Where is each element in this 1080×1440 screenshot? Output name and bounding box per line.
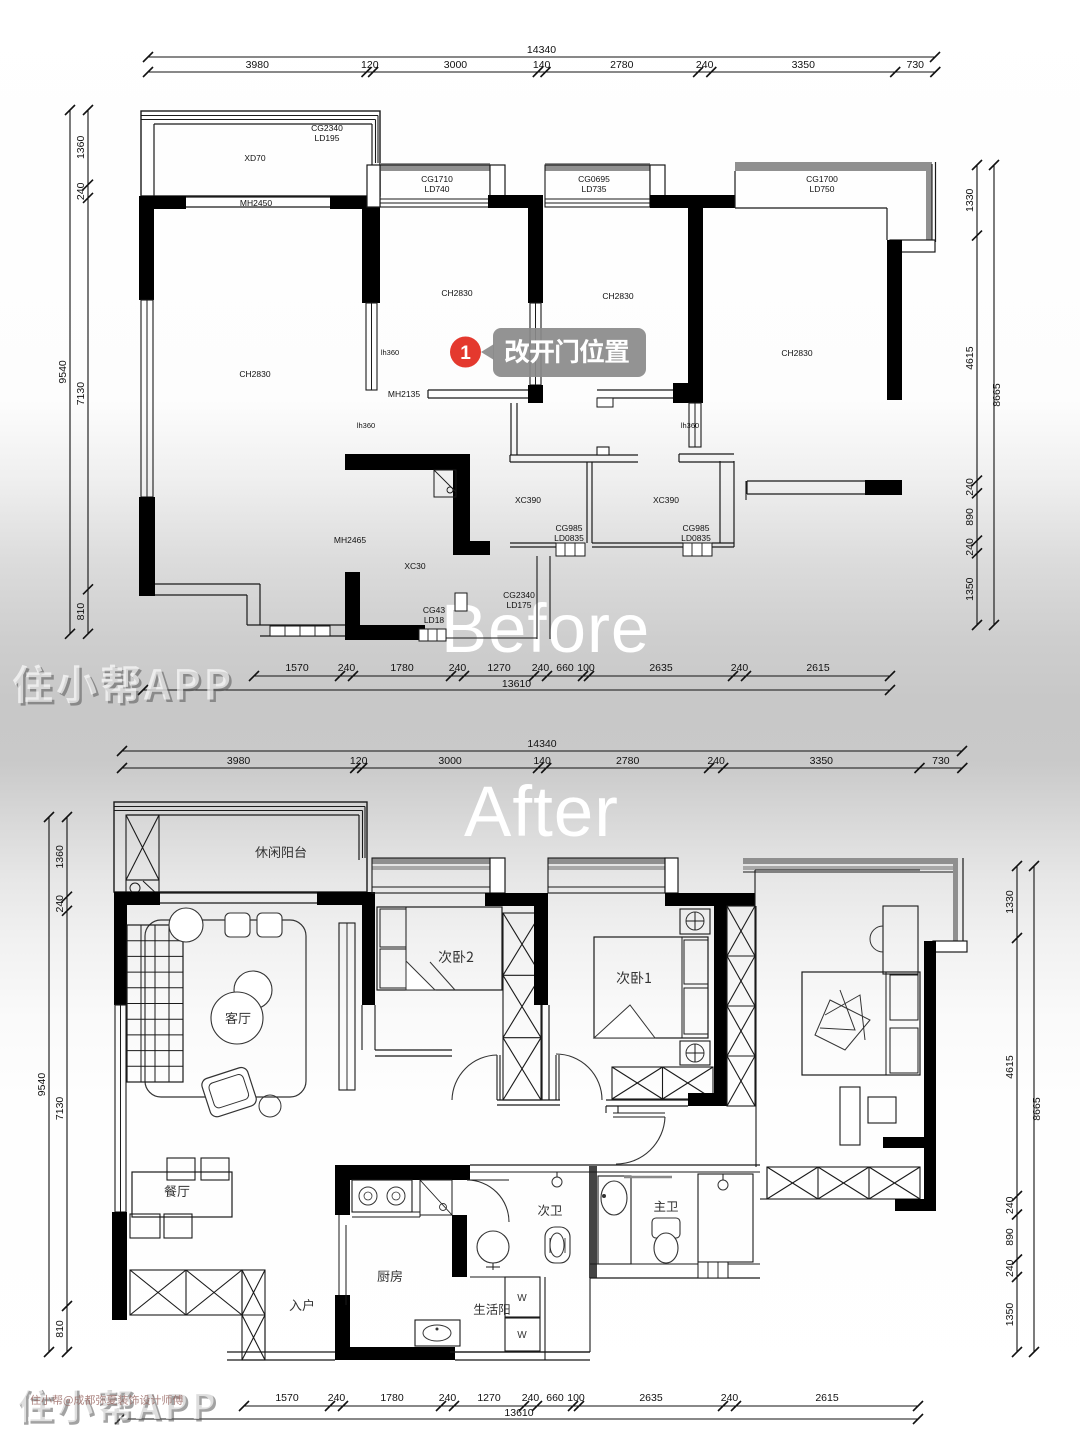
- svg-text:W: W: [517, 1330, 527, 1341]
- svg-text:13610: 13610: [502, 678, 531, 690]
- svg-text:CH2830: CH2830: [781, 348, 812, 358]
- svg-text:lh360: lh360: [681, 421, 699, 430]
- svg-text:120: 120: [350, 755, 368, 767]
- svg-text:8665: 8665: [991, 383, 1003, 407]
- svg-text:XC390: XC390: [515, 495, 541, 505]
- svg-text:1270: 1270: [487, 662, 511, 674]
- svg-text:240: 240: [696, 59, 714, 71]
- svg-text:810: 810: [54, 1320, 66, 1338]
- svg-text:4615: 4615: [964, 346, 976, 370]
- svg-text:100: 100: [577, 662, 595, 674]
- svg-text:1350: 1350: [1004, 1303, 1016, 1327]
- svg-text:660: 660: [556, 662, 574, 674]
- svg-text:14340: 14340: [527, 738, 556, 750]
- svg-text:100: 100: [567, 1392, 585, 1404]
- svg-text:LD175: LD175: [506, 600, 531, 610]
- svg-text:3980: 3980: [227, 755, 251, 767]
- svg-text:2615: 2615: [806, 662, 830, 674]
- svg-text:XD70: XD70: [244, 153, 266, 163]
- svg-text:1570: 1570: [285, 662, 309, 674]
- svg-text:2635: 2635: [649, 662, 673, 674]
- svg-text:3350: 3350: [792, 59, 816, 71]
- svg-text:CG0695: CG0695: [578, 174, 610, 184]
- svg-text:LD18: LD18: [424, 615, 445, 625]
- svg-text:240: 240: [707, 755, 725, 767]
- svg-text:240: 240: [75, 182, 87, 200]
- svg-text:3000: 3000: [438, 755, 462, 767]
- svg-text:MH2135: MH2135: [388, 389, 420, 399]
- svg-text:240: 240: [449, 662, 467, 674]
- svg-text:LD735: LD735: [581, 184, 606, 194]
- svg-text:240: 240: [328, 1392, 346, 1404]
- svg-text:1570: 1570: [275, 1392, 299, 1404]
- svg-text:1270: 1270: [477, 1392, 501, 1404]
- svg-text:MH2465: MH2465: [334, 535, 366, 545]
- svg-text:CG1700: CG1700: [806, 174, 838, 184]
- svg-text:140: 140: [533, 59, 551, 71]
- svg-text:LD0835: LD0835: [554, 533, 584, 543]
- svg-text:1350: 1350: [964, 577, 976, 601]
- svg-text:CH2830: CH2830: [239, 369, 270, 379]
- svg-text:120: 120: [361, 59, 379, 71]
- svg-text:CH2830: CH2830: [441, 288, 472, 298]
- svg-text:240: 240: [532, 662, 550, 674]
- svg-text:lh360: lh360: [381, 348, 399, 357]
- svg-text:CG985: CG985: [556, 523, 583, 533]
- svg-text:240: 240: [1004, 1259, 1016, 1277]
- svg-text:LD195: LD195: [314, 133, 339, 143]
- svg-text:240: 240: [964, 538, 976, 556]
- svg-text:14340: 14340: [527, 44, 556, 56]
- svg-text:7130: 7130: [54, 1097, 66, 1121]
- svg-text:1330: 1330: [964, 188, 976, 212]
- svg-text:XC390: XC390: [653, 495, 679, 505]
- svg-text:240: 240: [338, 662, 356, 674]
- svg-text:730: 730: [932, 755, 950, 767]
- svg-text:3350: 3350: [810, 755, 834, 767]
- svg-text:lh360: lh360: [357, 421, 375, 430]
- svg-text:CG2340: CG2340: [503, 590, 535, 600]
- svg-text:3000: 3000: [444, 59, 468, 71]
- svg-text:240: 240: [54, 895, 66, 913]
- svg-text:9540: 9540: [57, 360, 69, 384]
- svg-text:LD750: LD750: [809, 184, 834, 194]
- svg-text:1: 1: [460, 343, 471, 364]
- svg-text:9540: 9540: [36, 1073, 48, 1097]
- svg-text:CG43: CG43: [423, 605, 445, 615]
- svg-text:810: 810: [75, 603, 87, 621]
- svg-text:240: 240: [721, 1392, 739, 1404]
- svg-text:240: 240: [731, 662, 749, 674]
- svg-text:2615: 2615: [815, 1392, 839, 1404]
- svg-text:1360: 1360: [54, 845, 66, 869]
- svg-text:730: 730: [906, 59, 924, 71]
- svg-text:XC30: XC30: [404, 561, 426, 571]
- svg-text:660: 660: [546, 1392, 564, 1404]
- svg-text:1330: 1330: [1004, 890, 1016, 914]
- svg-text:140: 140: [533, 755, 551, 767]
- svg-text:1780: 1780: [380, 1392, 404, 1404]
- svg-text:240: 240: [1004, 1196, 1016, 1214]
- svg-text:CG1710: CG1710: [421, 174, 453, 184]
- svg-text:7130: 7130: [75, 382, 87, 406]
- svg-text:2780: 2780: [610, 59, 634, 71]
- svg-text:MH2450: MH2450: [240, 198, 272, 208]
- svg-text:1360: 1360: [75, 136, 87, 160]
- svg-text:240: 240: [522, 1392, 540, 1404]
- svg-text:1780: 1780: [390, 662, 414, 674]
- svg-text:2635: 2635: [639, 1392, 663, 1404]
- svg-text:240: 240: [439, 1392, 457, 1404]
- svg-text:CG985: CG985: [683, 523, 710, 533]
- svg-text:8665: 8665: [1031, 1097, 1043, 1121]
- svg-text:W: W: [517, 1293, 527, 1304]
- svg-text:LD0835: LD0835: [681, 533, 711, 543]
- svg-text:3980: 3980: [246, 59, 270, 71]
- svg-text:240: 240: [964, 478, 976, 496]
- svg-text:4615: 4615: [1004, 1055, 1016, 1079]
- svg-text:CH2830: CH2830: [602, 291, 633, 301]
- svg-text:13610: 13610: [504, 1407, 533, 1419]
- svg-text:2780: 2780: [616, 755, 640, 767]
- svg-text:890: 890: [1004, 1228, 1016, 1246]
- svg-text:890: 890: [964, 508, 976, 526]
- svg-text:CG2340: CG2340: [311, 123, 343, 133]
- svg-text:LD740: LD740: [424, 184, 449, 194]
